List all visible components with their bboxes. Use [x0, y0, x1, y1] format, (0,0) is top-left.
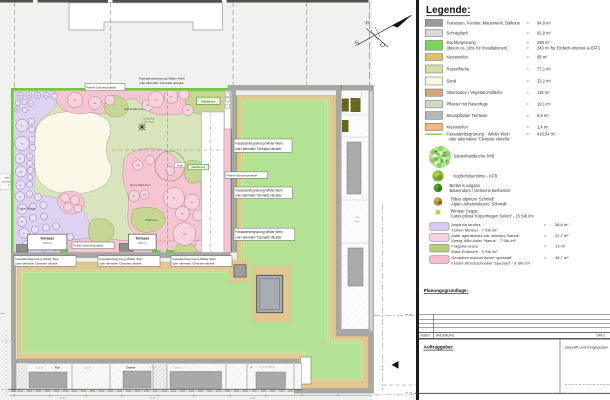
svg-text:oder alternativ 'Clematis viti: oder alternativ 'Clematis viticella' [235, 235, 281, 239]
svg-text:0,5 m²: 0,5 m² [150, 366, 156, 369]
svg-text:BS Schling.: BS Schling. [144, 119, 156, 121]
svg-text:Pflaster mit Rasenfuge: Pflaster mit Rasenfuge [447, 102, 489, 107]
svg-text:Wk: Wk [45, 95, 48, 97]
svg-text:Felsen-Storchschnabel: Felsen-Storchschnabel [226, 173, 257, 177]
svg-text:0,5 m²: 0,5 m² [84, 366, 90, 369]
svg-text:Zwerg-Wild-Aster: Zwerg-Wild-Aster [130, 183, 151, 187]
svg-text:Betonpflaster Terrasse: Betonpflaster Terrasse [447, 113, 489, 118]
svg-text:Wk: Wk [21, 222, 24, 224]
svg-text:TGL m. Rohrboden: TGL m. Rohrboden [258, 367, 275, 369]
svg-text:oder alternativ 'Clematis viti: oder alternativ 'Clematis viticella' [172, 262, 215, 266]
svg-text:418,54 m²: 418,54 m² [537, 132, 556, 137]
svg-text:Fassadenbegrünung Wilder Wein: Fassadenbegrünung Wilder Wein [172, 257, 216, 261]
svg-text:77,1 m²: 77,1 m² [537, 66, 552, 71]
svg-text:oder alternativ 'Clematis viti: oder alternativ 'Clematis viticella' [15, 262, 58, 266]
svg-text:Schrägdach: Schrägdach [447, 30, 470, 35]
svg-text:Terrassen, Fenster, Mauerwerk,: Terrassen, Fenster, Mauerwerk, Balkone [447, 20, 521, 25]
svg-text:Geprüft und freigegeben: Geprüft und freigegeben [565, 344, 608, 349]
svg-text:Wk: Wk [94, 103, 97, 105]
svg-text:Sand: Sand [447, 78, 457, 83]
svg-text:m: m [8, 184, 10, 187]
svg-text:Turiner Meister: Turiner Meister [18, 207, 36, 211]
svg-text:1,4 m²: 1,4 m² [537, 124, 549, 129]
svg-text:Turiner Meister - 7 Stk./m²: Turiner Meister - 7 Stk./m² [451, 227, 498, 232]
svg-text:19,1 m²: 19,1 m² [537, 102, 552, 107]
svg-text:SHB: SHB [177, 163, 183, 167]
svg-text:KFB: KFB [182, 234, 187, 236]
svg-text:Planungsgrundlage:: Planungsgrundlage: [424, 288, 469, 293]
svg-text:Fassadenbegrünung Wilder Wein: Fassadenbegrünung Wilder Wein [235, 189, 282, 193]
svg-text:Terrasse: Terrasse [135, 236, 149, 240]
svg-text:Waldbeere: Waldbeere [191, 165, 205, 169]
svg-text:Fassadenbegrünung Wilder Wein: Fassadenbegrünung Wilder Wein [235, 230, 282, 234]
svg-text:33,2 m²: 33,2 m² [537, 78, 552, 83]
svg-text:12,0 m²: 12,0 m² [36, 366, 44, 369]
svg-text:rnativ: rnativ [4, 177, 11, 180]
svg-text:Auftraggeber:: Auftraggeber: [424, 345, 455, 350]
svg-text:Fassadenbegrünung Wilder Wein: Fassadenbegrünung Wilder Wein [99, 257, 143, 261]
svg-text:Wk: Wk [19, 96, 22, 98]
svg-text:Wk: Wk [20, 172, 23, 174]
svg-text:Bauerndorn / Gemeine Berberitz: Bauerndorn / Gemeine Berberitze [450, 188, 512, 193]
svg-text:105 m²: 105 m² [43, 241, 51, 245]
svg-text:GE Pendel: GE Pendel [144, 122, 155, 124]
svg-text:INDEX: INDEX [421, 334, 432, 338]
svg-text:Felsen-Storchschnabel: Felsen-Storchschnabel [86, 85, 116, 89]
svg-text:Fassadenbegrünung Wilder Wein: Fassadenbegrünung Wilder Wein [139, 77, 185, 81]
svg-text:Alpen-Johannisbeere 'Schmidt': Alpen-Johannisbeere 'Schmidt' [451, 202, 507, 207]
svg-text:Rasenfläche: Rasenfläche [447, 66, 470, 71]
svg-text:243 m² für Einfach-Intensiv &: 243 m² für Einfach-Intensiv & BFF) [537, 45, 601, 50]
svg-text:Zwerg-Wild-Aster 'Nanus' - 7 S: Zwerg-Wild-Aster 'Nanus' - 7 Stk./m² [451, 238, 516, 243]
svg-text:Waldbeere: Waldbeere [201, 100, 215, 104]
svg-text:oder alternative 'Clematis vit: oder alternative 'Clematis viticella' [449, 137, 511, 142]
svg-text:68 m²: 68 m² [537, 54, 548, 59]
svg-text:Wk: Wk [27, 96, 30, 98]
svg-text:Waldbeere: Waldbeere [145, 218, 158, 222]
svg-text:Säulenhainbuche 3HB: Säulenhainbuche 3HB [454, 154, 495, 159]
svg-text:Carex pilosa 'Kopenhagen Selec: Carex pilosa 'Kopenhagen Select' - 15 St… [451, 214, 535, 219]
svg-text:Kupferfelsenbirne - KFB: Kupferfelsenbirne - KFB [454, 173, 498, 178]
svg-text:Wald-Erdbeere - 9 Stk./m²: Wald-Erdbeere - 9 Stk./m² [451, 249, 498, 254]
svg-text:Wk: Wk [170, 97, 173, 99]
svg-text:Felsen-Storchschnabel: Felsen-Storchschnabel [73, 244, 103, 248]
svg-text:Wk: Wk [36, 96, 39, 98]
svg-text:115 m²: 115 m² [537, 90, 550, 95]
svg-text:Felsen-Storchschnabel 'Spessar: Felsen-Storchschnabel 'Spessart' - 9 Stk… [451, 260, 531, 265]
svg-text:94,9 m²: 94,9 m² [537, 20, 552, 25]
svg-text:Kiesstreifen: Kiesstreifen [447, 124, 469, 129]
svg-text:Flur: Flur [355, 220, 359, 223]
svg-text:Oberboden / Vegetationsfläche: Oberboden / Vegetationsfläche [447, 90, 504, 95]
svg-text:13 m²: 13 m² [555, 244, 566, 249]
svg-text:6,9 m²: 6,9 m² [537, 113, 549, 118]
svg-text:Legende:: Legende: [426, 5, 470, 16]
svg-text:22,7 m²: 22,7 m² [555, 233, 569, 238]
svg-text:(davon ca. 18% für Installatio: (davon ca. 18% für Installationen) [447, 45, 509, 50]
svg-text:Flur: Flur [55, 366, 60, 370]
svg-text:Zimmer: Zimmer [126, 366, 135, 370]
svg-text:oder alternativ 'Clematis viti: oder alternativ 'Clematis viticella' [99, 262, 142, 266]
svg-text:oder alternativ 'Clematis viti: oder alternativ 'Clematis viticella' [235, 147, 281, 151]
svg-text:Zimmer: Zimmer [175, 366, 183, 369]
svg-text:38,7 m²: 38,7 m² [555, 255, 569, 260]
svg-text:oder alternativ 'Clematis viti: oder alternativ 'Clematis viticella' [235, 194, 281, 198]
svg-text:92,9 m²: 92,9 m² [537, 30, 552, 35]
svg-text:viticella: viticella [2, 180, 11, 183]
svg-text:38,8 m²: 38,8 m² [555, 222, 569, 227]
svg-text:oder alternativ 'Clematis viti: oder alternativ 'Clematis viticella' [139, 81, 184, 85]
svg-text:Fassadenbegrünung Wilder Wein: Fassadenbegrünung Wilder Wein [235, 141, 282, 145]
svg-text:105 m²: 105 m² [138, 241, 146, 245]
svg-text:DATU: DATU [597, 334, 606, 338]
svg-text:ÄNDERUNG: ÄNDERUNG [436, 334, 455, 338]
svg-text:Kiesstreifen: Kiesstreifen [447, 54, 469, 59]
svg-text:Fassadenbegrünung Wilder Wein: Fassadenbegrünung Wilder Wein [15, 257, 59, 261]
svg-text:Terrasse: Terrasse [40, 236, 54, 240]
svg-text:Zwerg-Wild-Aster: Zwerg-Wild-Aster [124, 107, 145, 111]
